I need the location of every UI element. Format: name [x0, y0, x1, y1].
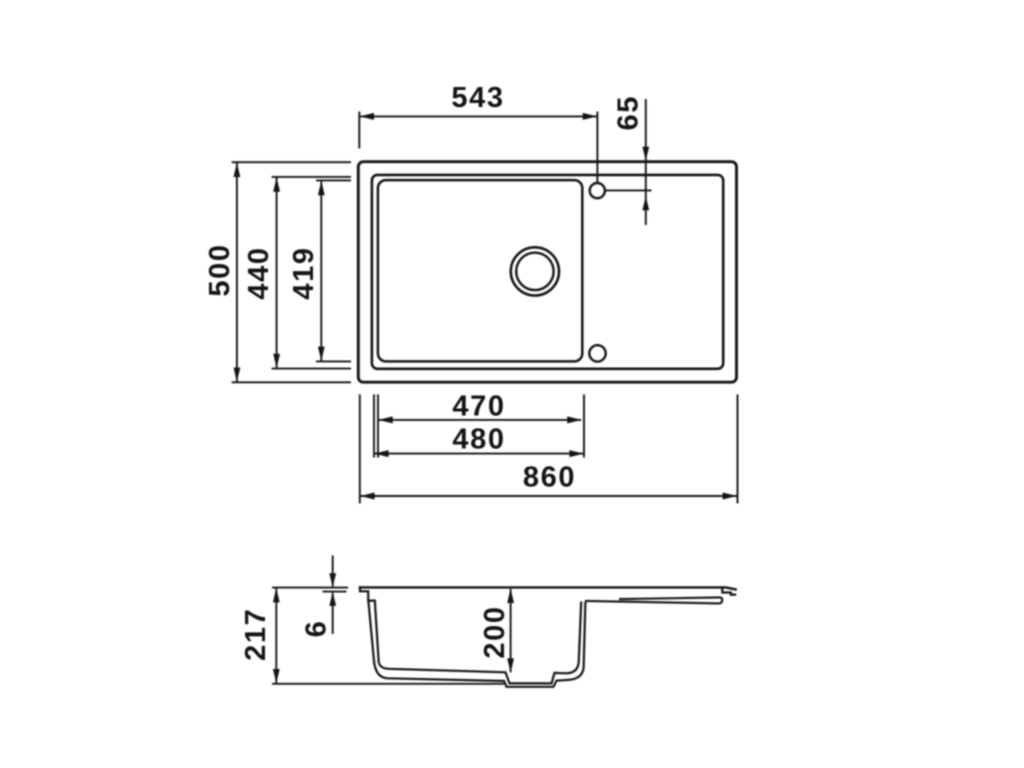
svg-text:217: 217 — [240, 608, 272, 661]
svg-text:440: 440 — [243, 246, 275, 299]
svg-text:470: 470 — [452, 390, 505, 422]
svg-text:6: 6 — [300, 620, 332, 638]
svg-text:500: 500 — [204, 243, 236, 296]
svg-text:419: 419 — [288, 246, 320, 299]
svg-text:65: 65 — [612, 95, 644, 130]
svg-text:480: 480 — [452, 424, 505, 456]
svg-text:200: 200 — [479, 605, 511, 658]
svg-text:860: 860 — [523, 461, 576, 493]
svg-text:543: 543 — [451, 82, 504, 114]
